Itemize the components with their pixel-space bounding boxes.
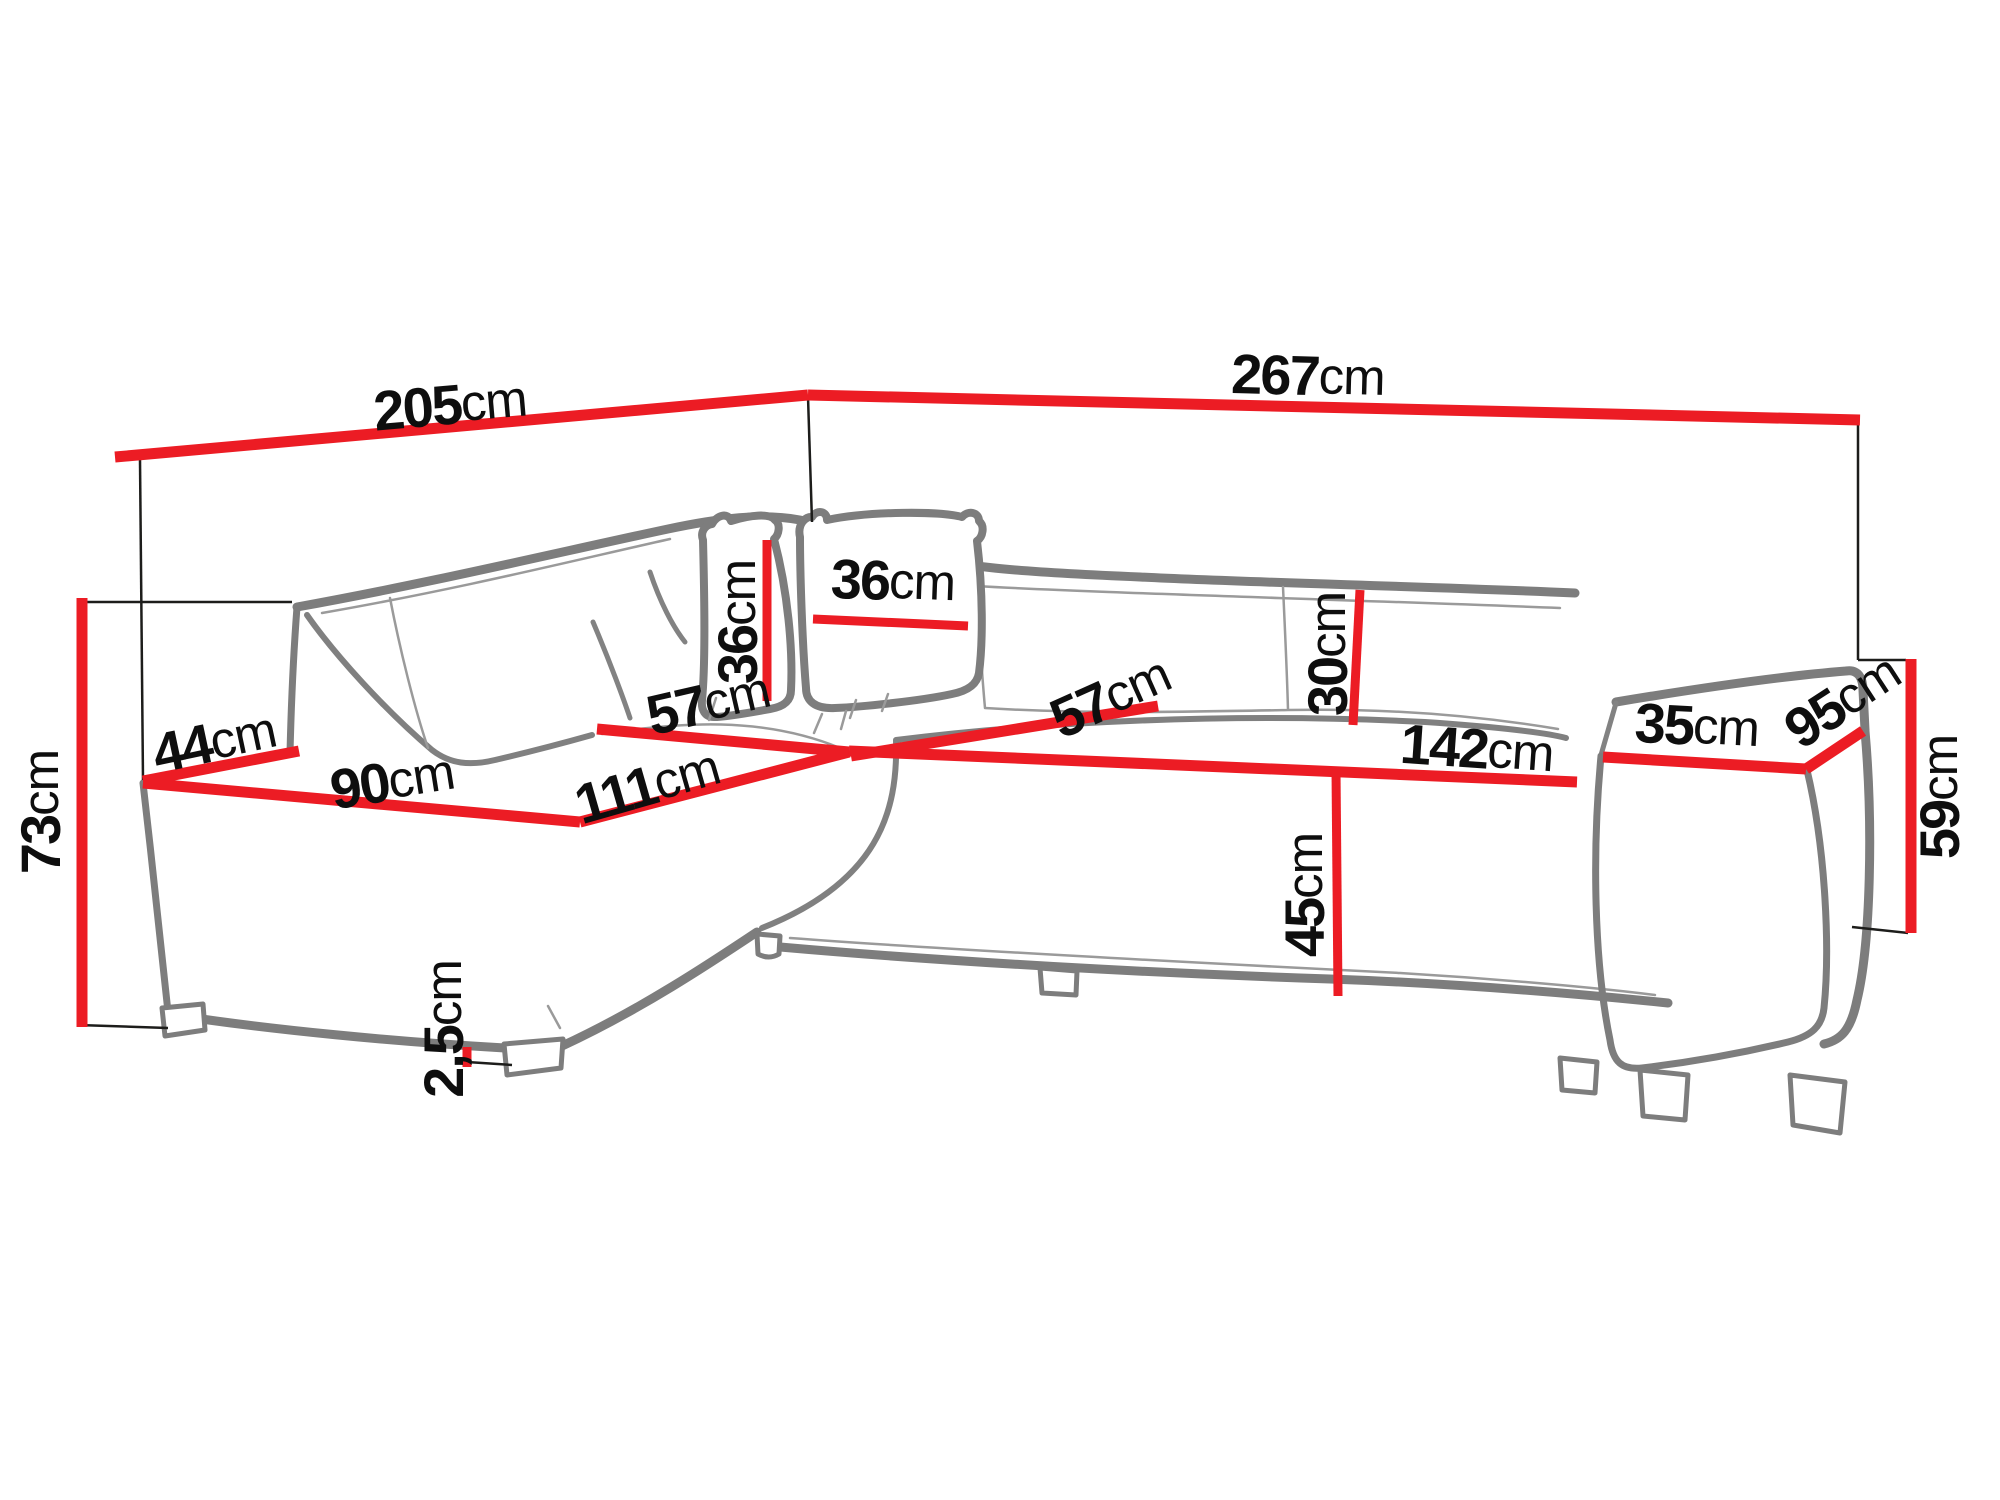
cushion-height-label: 36cm: [706, 560, 769, 684]
armrest-height-label: 59cm: [1908, 735, 1971, 859]
extension-line: [808, 397, 812, 522]
sofa-dimension-diagram: 205cm 267cm 73cm 44cm 90cm 111cm 57cm 57…: [0, 0, 2000, 1500]
base-bottom-edge: [780, 947, 1668, 1003]
corner-seat-57-line: [597, 729, 849, 752]
chaise-depth-label: 111cm: [568, 734, 727, 835]
sofa-foot: [1640, 1070, 1688, 1120]
sofa-foot: [1040, 968, 1077, 995]
seat-height-label: 45cm: [1273, 833, 1336, 957]
seat-depth-label: 57cm: [1040, 642, 1179, 750]
extension-line: [1852, 927, 1908, 933]
extension-line: [1858, 421, 1906, 660]
back-height-label: 73cm: [9, 750, 72, 874]
chaise-left-edge: [143, 783, 168, 1012]
sofa-foot: [757, 934, 780, 957]
seat-width-label: 142cm: [1398, 711, 1555, 785]
cushion-width-label: 36cm: [830, 546, 956, 613]
end-width-label: 44cm: [147, 697, 282, 784]
seat-height-45-line: [1336, 770, 1338, 996]
dimension-labels: 205cm 267cm 73cm 44cm 90cm 111cm 57cm 57…: [9, 342, 1971, 1098]
corner-pillow-front: [799, 512, 982, 708]
back-right-label: 267cm: [1230, 342, 1385, 409]
armrest-width-label: 35cm: [1633, 690, 1760, 759]
left-backrest-cushion: [307, 615, 592, 763]
back-left-label: 205cm: [371, 366, 529, 442]
sofa-foot: [1560, 1058, 1597, 1093]
sofa-left-end-edge: [290, 607, 297, 753]
armrest-right-side: [1824, 731, 1870, 1044]
chaise-right-bottom-edge: [562, 932, 757, 1046]
sofa-foot: [162, 1004, 205, 1036]
extension-line: [140, 460, 143, 780]
sofa-drawing: [143, 512, 1870, 1133]
diagram-canvas: 205cm 267cm 73cm 44cm 90cm 111cm 57cm 57…: [0, 0, 2000, 1500]
armrest-front-face: [1596, 756, 1827, 1068]
armrest-width-35-line: [1603, 757, 1806, 769]
sofa-foot: [1790, 1075, 1845, 1133]
backrest-height-label: 30cm: [1296, 592, 1359, 716]
foot-height-label: 2,5cm: [412, 960, 475, 1098]
extension-line: [78, 1025, 168, 1028]
sofa-foot: [504, 1039, 563, 1075]
